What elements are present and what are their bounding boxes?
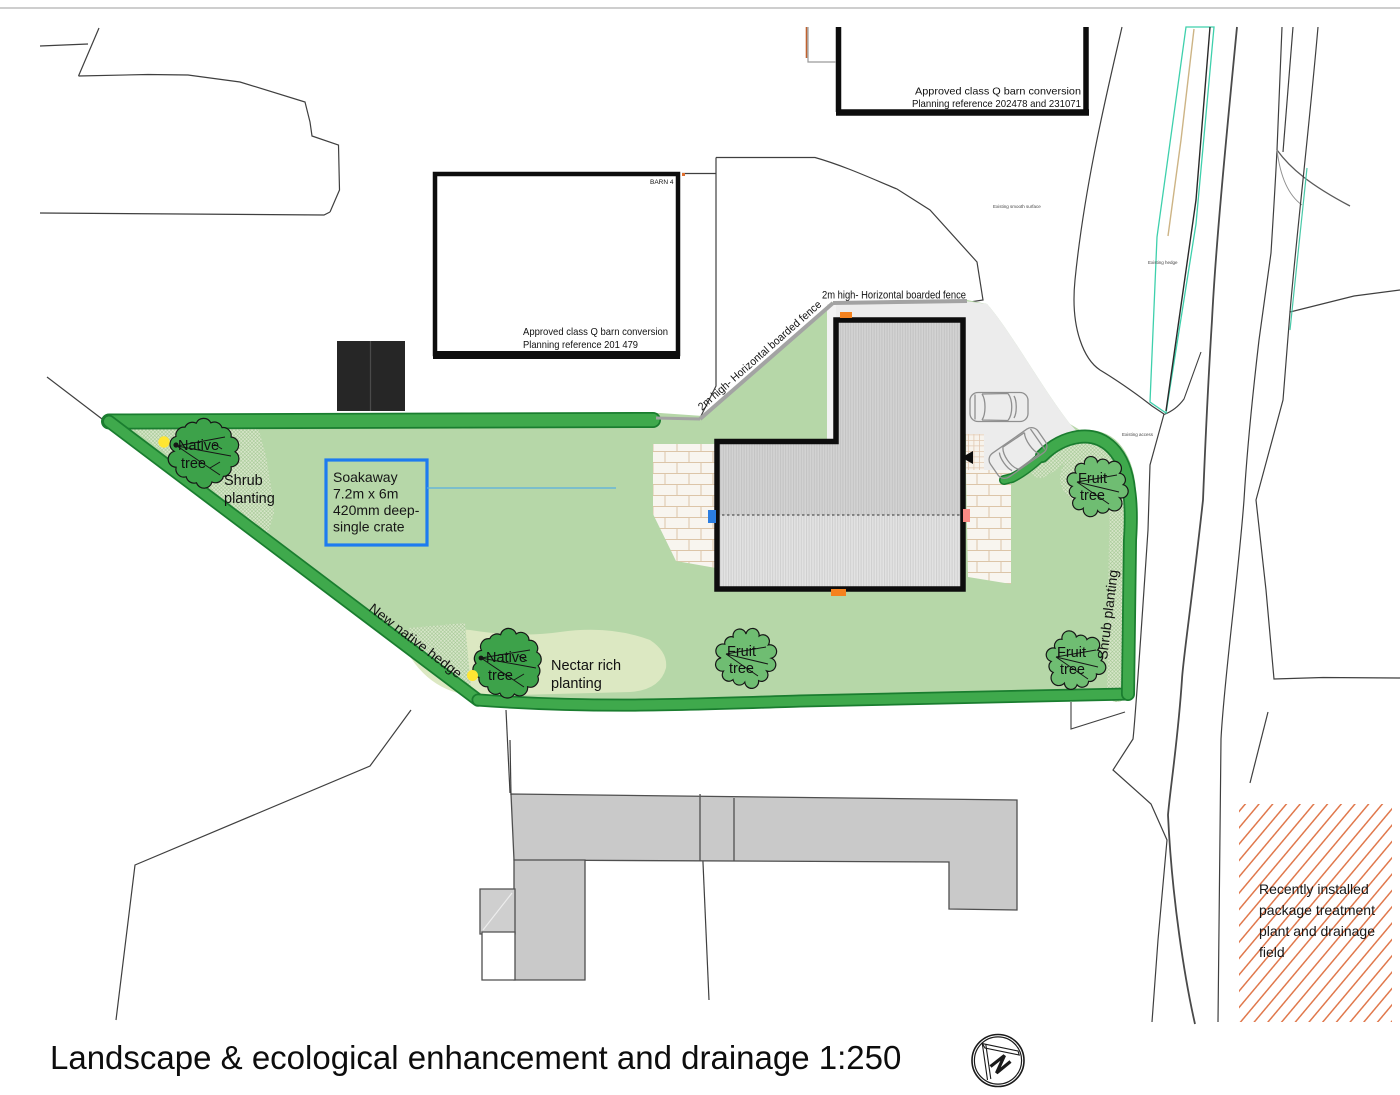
svg-text:Shrub: Shrub	[224, 473, 263, 489]
svg-text:single crate: single crate	[333, 519, 405, 535]
svg-text:Existing hedge: Existing hedge	[1148, 260, 1178, 265]
svg-text:Planning reference 201 479: Planning reference 201 479	[523, 339, 638, 351]
svg-text:2m high- Horizontal boarded fe: 2m high- Horizontal boarded fence	[822, 290, 966, 302]
svg-text:Native: Native	[178, 438, 219, 454]
svg-text:tree: tree	[1080, 488, 1105, 504]
svg-text:Nectar rich: Nectar rich	[551, 658, 621, 674]
svg-text:Fruit: Fruit	[727, 644, 756, 660]
svg-text:tree: tree	[181, 456, 206, 472]
svg-text:planting: planting	[551, 676, 602, 692]
svg-text:Existing smooth surface: Existing smooth surface	[993, 204, 1041, 209]
svg-text:Existing access: Existing access	[1122, 432, 1154, 437]
svg-text:Fruit: Fruit	[1057, 645, 1086, 661]
svg-text:planting: planting	[224, 491, 275, 507]
svg-text:tree: tree	[1060, 662, 1085, 678]
svg-text:tree: tree	[729, 661, 754, 677]
svg-text:Soakaway: Soakaway	[333, 469, 398, 485]
svg-text:plant and drainage: plant and drainage	[1259, 923, 1375, 939]
svg-text:7.2m x 6m: 7.2m x 6m	[333, 486, 398, 502]
svg-text:Recently installed: Recently installed	[1259, 881, 1369, 897]
svg-text:Approved class Q barn conversi: Approved class Q barn conversion	[915, 86, 1081, 98]
svg-text:tree: tree	[488, 668, 513, 684]
svg-text:field: field	[1259, 944, 1285, 960]
svg-text:package treatment: package treatment	[1259, 902, 1375, 918]
svg-text:Fruit: Fruit	[1078, 471, 1107, 487]
svg-text:Native: Native	[486, 650, 527, 666]
svg-text:Landscape & ecological enhance: Landscape & ecological enhancement and d…	[50, 1039, 901, 1076]
svg-text:420mm deep-: 420mm deep-	[333, 502, 420, 518]
svg-text:Planning reference 202478 and: Planning reference 202478 and 231071	[912, 98, 1081, 110]
svg-text:BARN 4: BARN 4	[650, 179, 674, 186]
svg-text:Approved class Q barn conversi: Approved class Q barn conversion	[523, 326, 668, 338]
